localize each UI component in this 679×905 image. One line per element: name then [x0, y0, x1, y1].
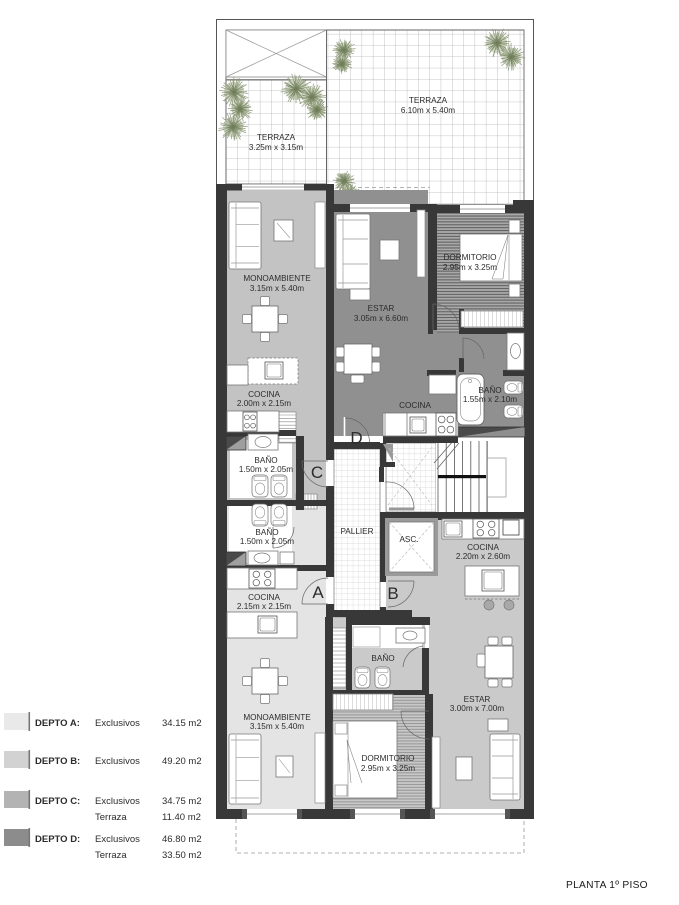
svg-text:COCINA: COCINA [467, 543, 499, 552]
svg-text:MONOAMBIENTE: MONOAMBIENTE [243, 274, 311, 283]
svg-text:TERRAZA: TERRAZA [409, 96, 448, 105]
svg-text:2.15m x 2.15m: 2.15m x 2.15m [237, 602, 291, 611]
svg-text:3.00m x 7.00m: 3.00m x 7.00m [450, 704, 504, 713]
svg-text:ASC.: ASC. [399, 535, 418, 544]
svg-text:34.75 m2: 34.75 m2 [162, 796, 202, 807]
svg-text:BAÑO: BAÑO [255, 527, 278, 537]
svg-text:1.50m x 2.05m: 1.50m x 2.05m [240, 537, 294, 546]
svg-text:3.15m x 5.40m: 3.15m x 5.40m [250, 284, 304, 293]
svg-text:D: D [350, 429, 362, 448]
svg-text:11.40 m2: 11.40 m2 [162, 812, 201, 823]
svg-text:A: A [312, 583, 324, 602]
svg-text:1.50m x 2.05m: 1.50m x 2.05m [239, 465, 293, 474]
svg-text:ESTAR: ESTAR [464, 695, 491, 704]
svg-text:3.05m x 6.60m: 3.05m x 6.60m [354, 314, 408, 323]
svg-text:COCINA: COCINA [248, 390, 280, 399]
svg-text:TERRAZA: TERRAZA [257, 133, 296, 142]
svg-text:3.25m x 3.15m: 3.25m x 3.15m [249, 143, 303, 152]
svg-text:33.50 m2: 33.50 m2 [162, 850, 202, 861]
svg-text:BAÑO: BAÑO [371, 653, 394, 663]
svg-text:49.20 m2: 49.20 m2 [162, 756, 202, 767]
svg-text:COCINA: COCINA [248, 593, 280, 602]
svg-text:Exclusivos: Exclusivos [95, 756, 140, 767]
svg-text:MONOAMBIENTE: MONOAMBIENTE [243, 713, 311, 722]
svg-text:34.15 m2: 34.15 m2 [162, 718, 202, 729]
svg-text:Exclusivos: Exclusivos [95, 718, 140, 729]
svg-text:BAÑO: BAÑO [254, 455, 277, 465]
svg-text:PALLIER: PALLIER [340, 527, 373, 536]
svg-text:Terraza: Terraza [95, 812, 127, 823]
svg-text:PLANTA 1º PISO: PLANTA 1º PISO [566, 880, 648, 891]
svg-text:DEPTO B:: DEPTO B: [35, 756, 80, 767]
svg-text:DORMITORIO: DORMITORIO [361, 754, 414, 763]
svg-text:Terraza: Terraza [95, 850, 127, 861]
svg-text:DORMITORIO: DORMITORIO [443, 253, 496, 262]
svg-text:2.00m x 2.15m: 2.00m x 2.15m [237, 399, 291, 408]
svg-text:DEPTO D:: DEPTO D: [35, 834, 80, 845]
svg-text:B: B [387, 584, 398, 603]
svg-text:Exclusivos: Exclusivos [95, 796, 140, 807]
svg-text:46.80 m2: 46.80 m2 [162, 834, 202, 845]
svg-text:2.95m x 3.25m: 2.95m x 3.25m [361, 764, 415, 773]
svg-text:ESTAR: ESTAR [368, 304, 395, 313]
svg-text:COCINA: COCINA [399, 401, 431, 410]
svg-text:2.95m x 3.25m: 2.95m x 3.25m [443, 263, 497, 272]
svg-text:2.20m x 2.60m: 2.20m x 2.60m [456, 552, 510, 561]
svg-text:6.10m x 5.40m: 6.10m x 5.40m [401, 106, 455, 115]
svg-text:1.55m x 2.10m: 1.55m x 2.10m [463, 395, 517, 404]
svg-text:BAÑO: BAÑO [478, 385, 501, 395]
svg-text:3.15m x 5.40m: 3.15m x 5.40m [250, 722, 304, 731]
svg-text:DEPTO C:: DEPTO C: [35, 796, 80, 807]
svg-text:Exclusivos: Exclusivos [95, 834, 140, 845]
svg-text:DEPTO A:: DEPTO A: [35, 718, 80, 729]
svg-text:C: C [311, 463, 323, 482]
